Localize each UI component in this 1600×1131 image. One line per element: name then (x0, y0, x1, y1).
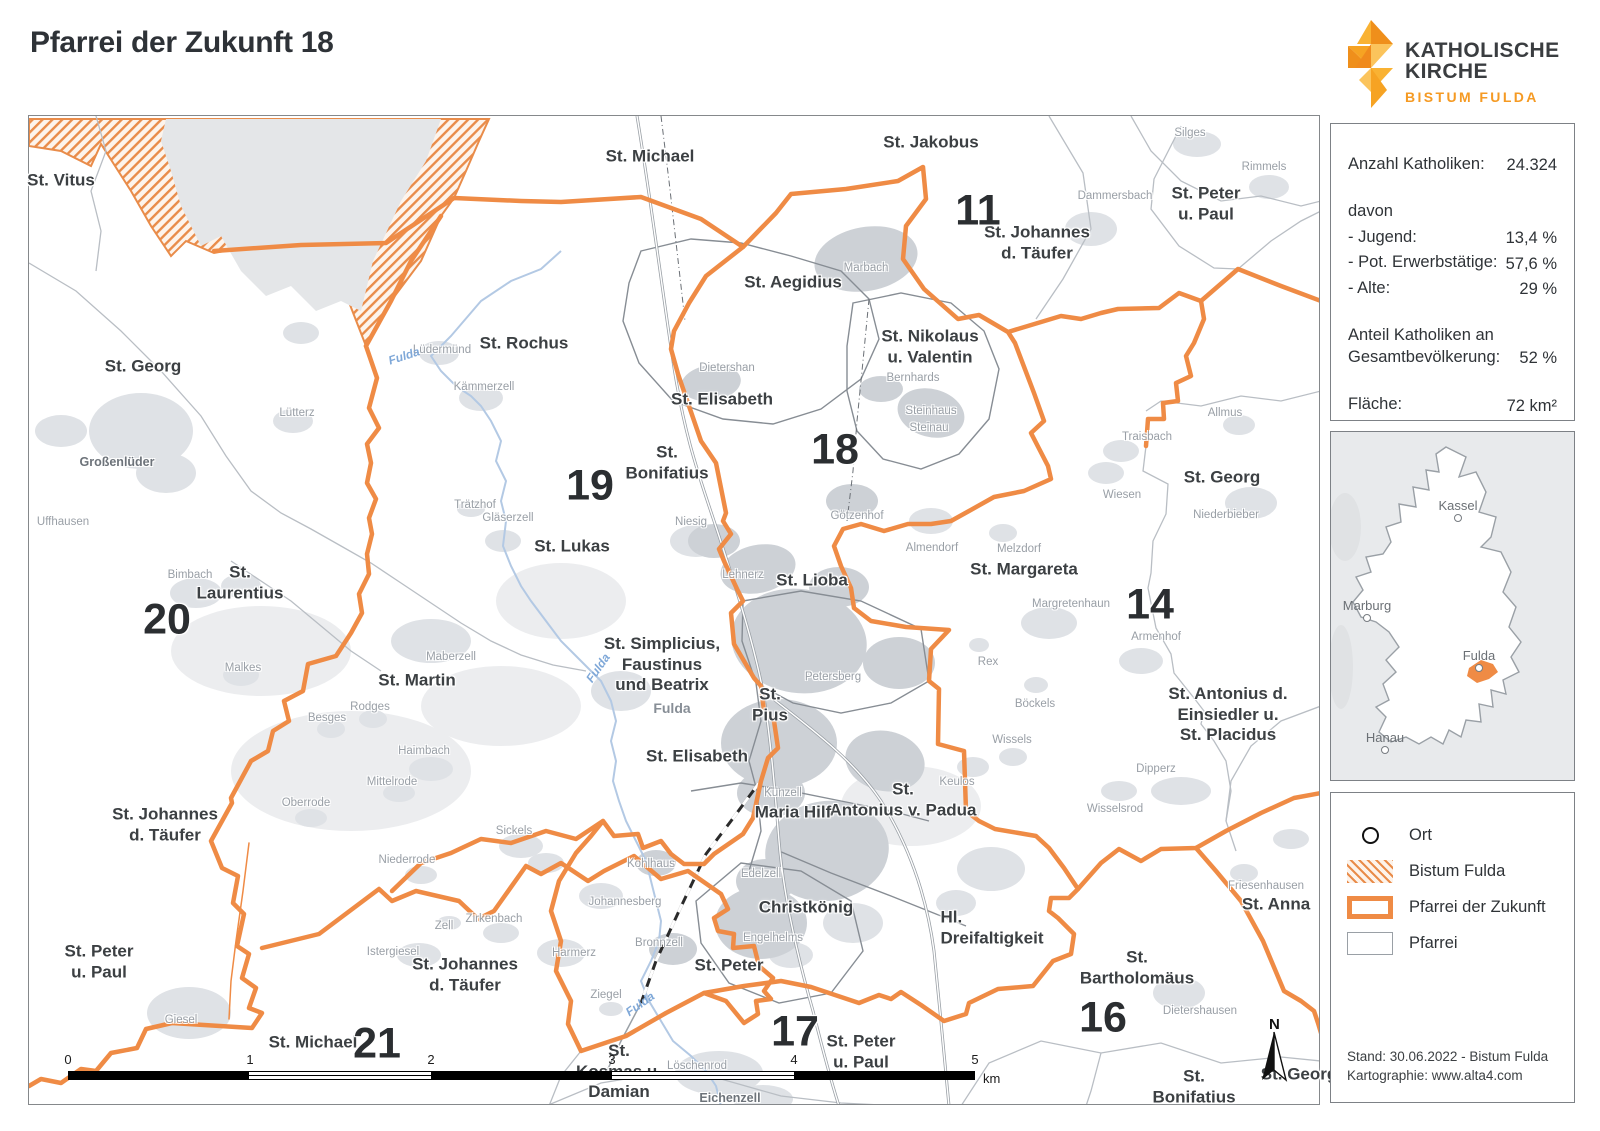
scale-bar: 012345 km (68, 1071, 975, 1080)
davon-label: davon (1348, 201, 1393, 222)
legend-item-pfarrei: Pfarrei (1347, 931, 1574, 956)
legend-panel: Ort Bistum Fulda Pfarrei der Zukunft Pfa… (1330, 792, 1575, 1103)
dashed-boundary (661, 116, 869, 521)
city-dot-icon (1363, 614, 1371, 622)
scale-tick: 1 (246, 1052, 253, 1067)
settlement-areas (35, 131, 1309, 1105)
map-canvas (29, 116, 1320, 1105)
cross-icon (1345, 18, 1397, 110)
scale-unit: km (983, 1071, 1000, 1086)
logo-line2: KIRCHE (1405, 61, 1560, 82)
pfarrei-swatch-icon (1347, 932, 1393, 955)
scale-tick: 2 (427, 1052, 434, 1067)
north-arrow-icon (1253, 1028, 1297, 1098)
scale-tick: 0 (64, 1052, 71, 1067)
ort-icon (1362, 827, 1379, 844)
anzahl-katholiken-value: 24.324 (1507, 156, 1557, 175)
pdz-swatch-icon (1347, 896, 1393, 919)
alte-label: - Alte: (1348, 278, 1390, 299)
alte-value: 29 % (1519, 280, 1557, 299)
statistics-panel: Anzahl Katholiken: 24.324 davon - Jugend… (1330, 123, 1575, 421)
scale-tick: 3 (608, 1052, 615, 1067)
erwerbstaetige-value: 57,6 % (1506, 255, 1557, 274)
bistum-fulda-logo: KATHOLISCHE KIRCHE BISTUM FULDA (1345, 16, 1575, 108)
overview-map: Kassel Marburg Fulda Hanau (1330, 431, 1575, 781)
legend-label-pfarrei: Pfarrei (1409, 934, 1458, 953)
city-dot-icon (1381, 746, 1389, 754)
north-arrow: N (1253, 1016, 1297, 1086)
main-map (28, 115, 1320, 1105)
legend-label-bistum-fulda: Bistum Fulda (1409, 862, 1505, 881)
legend-item-ort: Ort (1347, 823, 1574, 848)
jugend-label: - Jugend: (1348, 227, 1417, 248)
cartography-credit: Kartographie: www.alta4.com (1347, 1066, 1548, 1086)
city-name: Fulda (1463, 648, 1496, 663)
page: Pfarrei der Zukunft 18 KATHOLISCHE KIRCH… (0, 0, 1600, 1131)
erwerbstaetige-label: - Pot. Erwerbstätige: (1348, 252, 1497, 273)
city-dot-icon (1454, 514, 1462, 522)
legend-item-bistum-fulda: Bistum Fulda (1347, 859, 1574, 884)
flaeche-label: Fläche: (1348, 394, 1402, 415)
legend-label-pfarrei-der-zukunft: Pfarrei der Zukunft (1409, 898, 1546, 917)
anzahl-katholiken-label: Anzahl Katholiken: (1348, 154, 1485, 175)
overview-cities: Kassel Marburg Fulda Hanau (1331, 432, 1573, 779)
city-name: Marburg (1343, 598, 1391, 613)
logo-line3: BISTUM FULDA (1405, 90, 1560, 104)
city-name: Kassel (1438, 498, 1477, 513)
anteil-value: 52 % (1519, 349, 1557, 368)
logo-line1: KATHOLISCHE (1405, 40, 1560, 61)
city-name: Hanau (1366, 730, 1404, 745)
scale-tick: 4 (790, 1052, 797, 1067)
scale-bar-segments (68, 1071, 975, 1080)
hatch-swatch-icon (1347, 860, 1393, 883)
stand-date: Stand: 30.06.2022 - Bistum Fulda (1347, 1047, 1548, 1067)
city-dot-icon (1475, 664, 1483, 672)
bistum-fulda-hatch-area (29, 119, 489, 346)
flaeche-value: 72 km² (1507, 397, 1557, 416)
map-credits: Stand: 30.06.2022 - Bistum Fulda Kartogr… (1347, 1047, 1548, 1086)
scale-tick: 5 (971, 1052, 978, 1067)
legend-item-pfarrei-der-zukunft: Pfarrei der Zukunft (1347, 895, 1574, 920)
jugend-value: 13,4 % (1506, 229, 1557, 248)
legend-label-ort: Ort (1409, 826, 1432, 845)
page-title: Pfarrei der Zukunft 18 (30, 26, 333, 60)
anteil-label: Anteil Katholiken an Gesamtbevölkerung: (1348, 325, 1500, 368)
